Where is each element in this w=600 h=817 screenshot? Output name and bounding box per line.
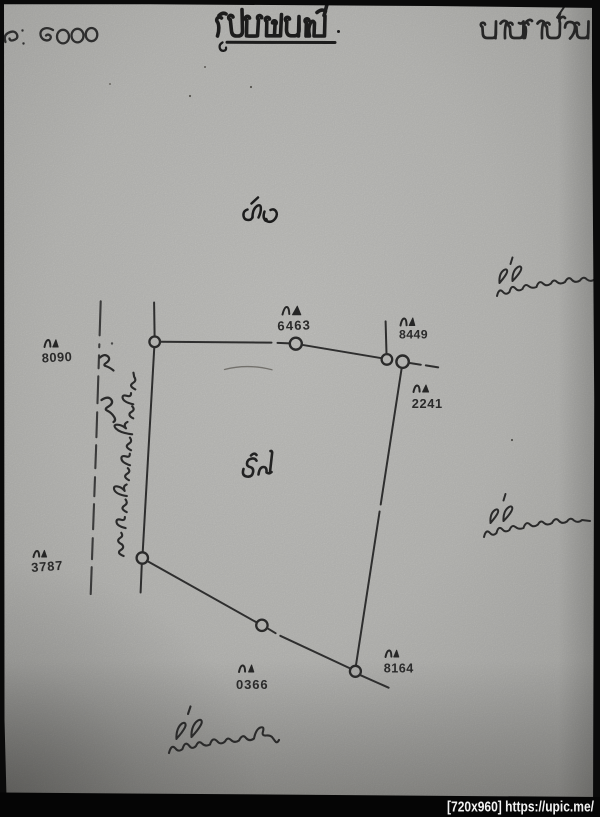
svg-text:8090: 8090 [41,349,72,366]
svg-text:0366: 0366 [236,677,269,692]
svg-text:3787: 3787 [31,558,64,575]
svg-text:8449: 8449 [399,328,428,342]
svg-text:[720x960] https://upic.me/: [720x960] https://upic.me/ [447,799,595,816]
svg-text:8164: 8164 [384,662,414,676]
svg-text:6463: 6463 [277,317,311,333]
svg-text:2241: 2241 [412,396,443,411]
